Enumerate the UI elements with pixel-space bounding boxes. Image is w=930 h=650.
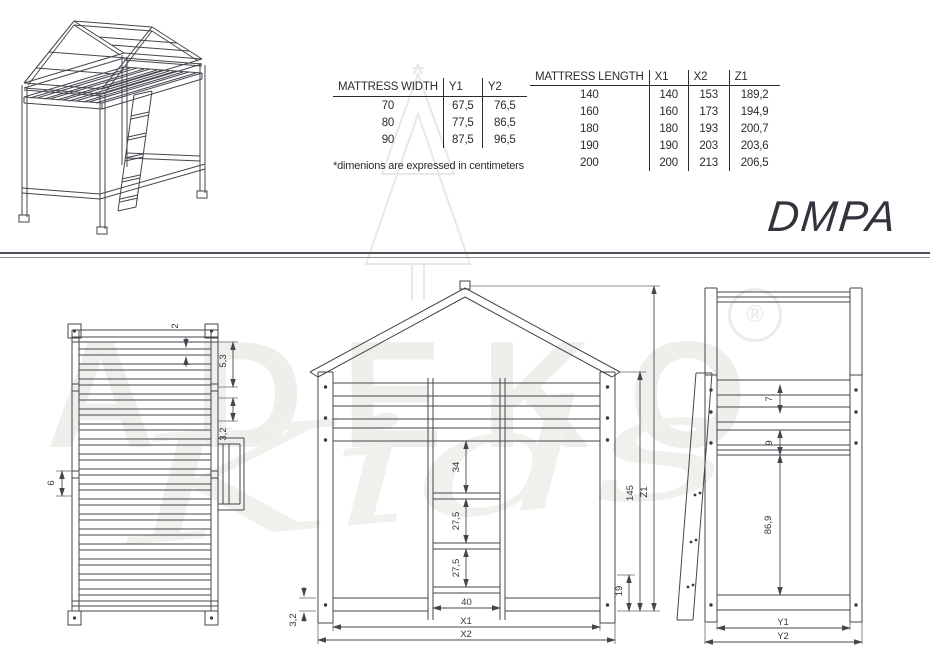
dim-label-upper-gap: 5,3 bbox=[218, 354, 229, 367]
width-table-header: MATTRESS WIDTH bbox=[333, 78, 443, 97]
isometric-bed-drawing bbox=[10, 5, 280, 240]
section-divider bbox=[0, 252, 930, 258]
cell: 77,5 bbox=[443, 114, 482, 131]
dim-label-center-gap: 6 bbox=[46, 480, 57, 485]
dim-label-ladder-top: 34 bbox=[451, 462, 462, 473]
y2-header: Y2 bbox=[482, 78, 527, 97]
dim-label-eave-height: 145 bbox=[625, 485, 636, 501]
post-outline bbox=[318, 372, 615, 623]
mattress-width-table: MATTRESS WIDTH Y1 Y2 70 67,5 76,5 80 77,… bbox=[333, 78, 527, 148]
cell: 67,5 bbox=[443, 97, 482, 115]
cell: 206,5 bbox=[729, 154, 780, 171]
cell: 180 bbox=[649, 120, 688, 137]
cell: 213 bbox=[688, 154, 729, 171]
ladder-top-view bbox=[218, 438, 244, 510]
dim-label-outer-width: Y2 bbox=[777, 631, 789, 642]
dim-label-under-bed: 86,9 bbox=[763, 516, 774, 535]
dim-label-ladder-offset: 3,2 bbox=[218, 427, 229, 440]
roof-outline bbox=[310, 281, 620, 377]
stretcher-lines bbox=[22, 153, 205, 199]
cell: 190 bbox=[649, 137, 688, 154]
dim-label-rail-gap-lower: 9 bbox=[764, 440, 775, 445]
dim-label-rung-gap-2: 27,5 bbox=[451, 559, 462, 578]
cell: 203,6 bbox=[729, 137, 780, 154]
cell: 90 bbox=[333, 131, 443, 148]
dim-label-inner-length: X1 bbox=[460, 616, 472, 627]
dim-label-rail-gap-upper: 7 bbox=[764, 396, 775, 401]
cell: 194,9 bbox=[729, 103, 780, 120]
cell: 200 bbox=[649, 154, 688, 171]
cell: 76,5 bbox=[482, 97, 527, 115]
table-row: 90 87,5 96,5 bbox=[333, 131, 527, 148]
cell: 180 bbox=[530, 120, 649, 137]
z1-header: Z1 bbox=[729, 70, 780, 86]
side-screw-dots bbox=[709, 388, 857, 606]
cell: 80 bbox=[333, 114, 443, 131]
cell: 193 bbox=[688, 120, 729, 137]
x2-header: X2 bbox=[688, 70, 729, 86]
dim-label-rung-gap-1: 27,5 bbox=[451, 512, 462, 531]
cell: 140 bbox=[649, 86, 688, 104]
cell: 140 bbox=[530, 86, 649, 104]
cell: 173 bbox=[688, 103, 729, 120]
table-row: 160 160 173 194,9 bbox=[530, 103, 780, 120]
side-view-dimensions: 7 9 86,9 Y1 Y2 bbox=[705, 385, 862, 644]
ladder-front bbox=[428, 378, 505, 620]
dim-label-slat-thickness: 2 bbox=[170, 323, 181, 328]
table-row: 180 180 193 200,7 bbox=[530, 120, 780, 137]
cell: 200,7 bbox=[729, 120, 780, 137]
x1-header: X1 bbox=[649, 70, 688, 86]
side-rails bbox=[717, 292, 850, 610]
cell: 153 bbox=[688, 86, 729, 104]
cell: 203 bbox=[688, 137, 729, 154]
cell: 189,2 bbox=[729, 86, 780, 104]
leaning-ladder bbox=[677, 373, 712, 620]
front-view-drawing: 34 27,5 27,5 40 X1 X2 3,2 19 145 Z1 bbox=[283, 278, 673, 650]
cell: 86,5 bbox=[482, 114, 527, 131]
table-row: 190 190 203 203,6 bbox=[530, 137, 780, 154]
dimension-sheet: ADEKO ® Kids bbox=[0, 0, 930, 650]
units-note: *dimenions are expressed in centimeters bbox=[333, 160, 524, 172]
ladder-lines bbox=[118, 91, 152, 211]
table-row: 80 77,5 86,5 bbox=[333, 114, 527, 131]
mattress-length-table: MATTRESS LENGTH X1 X2 Z1 140 140 153 189… bbox=[530, 70, 780, 171]
cell: 190 bbox=[530, 137, 649, 154]
table-row: 140 140 153 189,2 bbox=[530, 86, 780, 104]
slat-lines bbox=[79, 349, 211, 595]
dim-label-bottom-gap: 19 bbox=[614, 586, 625, 597]
cell: 160 bbox=[530, 103, 649, 120]
side-view-drawing: 7 9 86,9 Y1 Y2 bbox=[646, 273, 892, 650]
table-row: 200 200 213 206,5 bbox=[530, 154, 780, 171]
dim-label-base-thickness: 3,2 bbox=[288, 613, 299, 626]
cell: 87,5 bbox=[443, 131, 482, 148]
dim-label-outer-length: X2 bbox=[460, 629, 472, 640]
table-row: 70 67,5 76,5 bbox=[333, 97, 527, 115]
model-name: DMPA bbox=[765, 193, 899, 242]
cell: 96,5 bbox=[482, 131, 527, 148]
top-view-drawing: 2 5,3 3,2 6 bbox=[26, 293, 278, 645]
rail-planks bbox=[333, 383, 600, 611]
dim-label-ladder-width: 40 bbox=[461, 597, 472, 608]
cell: 70 bbox=[333, 97, 443, 115]
front-view-dimensions: 34 27,5 27,5 40 X1 X2 3,2 19 145 Z1 bbox=[288, 286, 660, 644]
dim-label-inner-width: Y1 bbox=[777, 617, 789, 628]
y1-header: Y1 bbox=[443, 78, 482, 97]
length-table-header: MATTRESS LENGTH bbox=[530, 70, 649, 86]
cell: 160 bbox=[649, 103, 688, 120]
cell: 200 bbox=[530, 154, 649, 171]
